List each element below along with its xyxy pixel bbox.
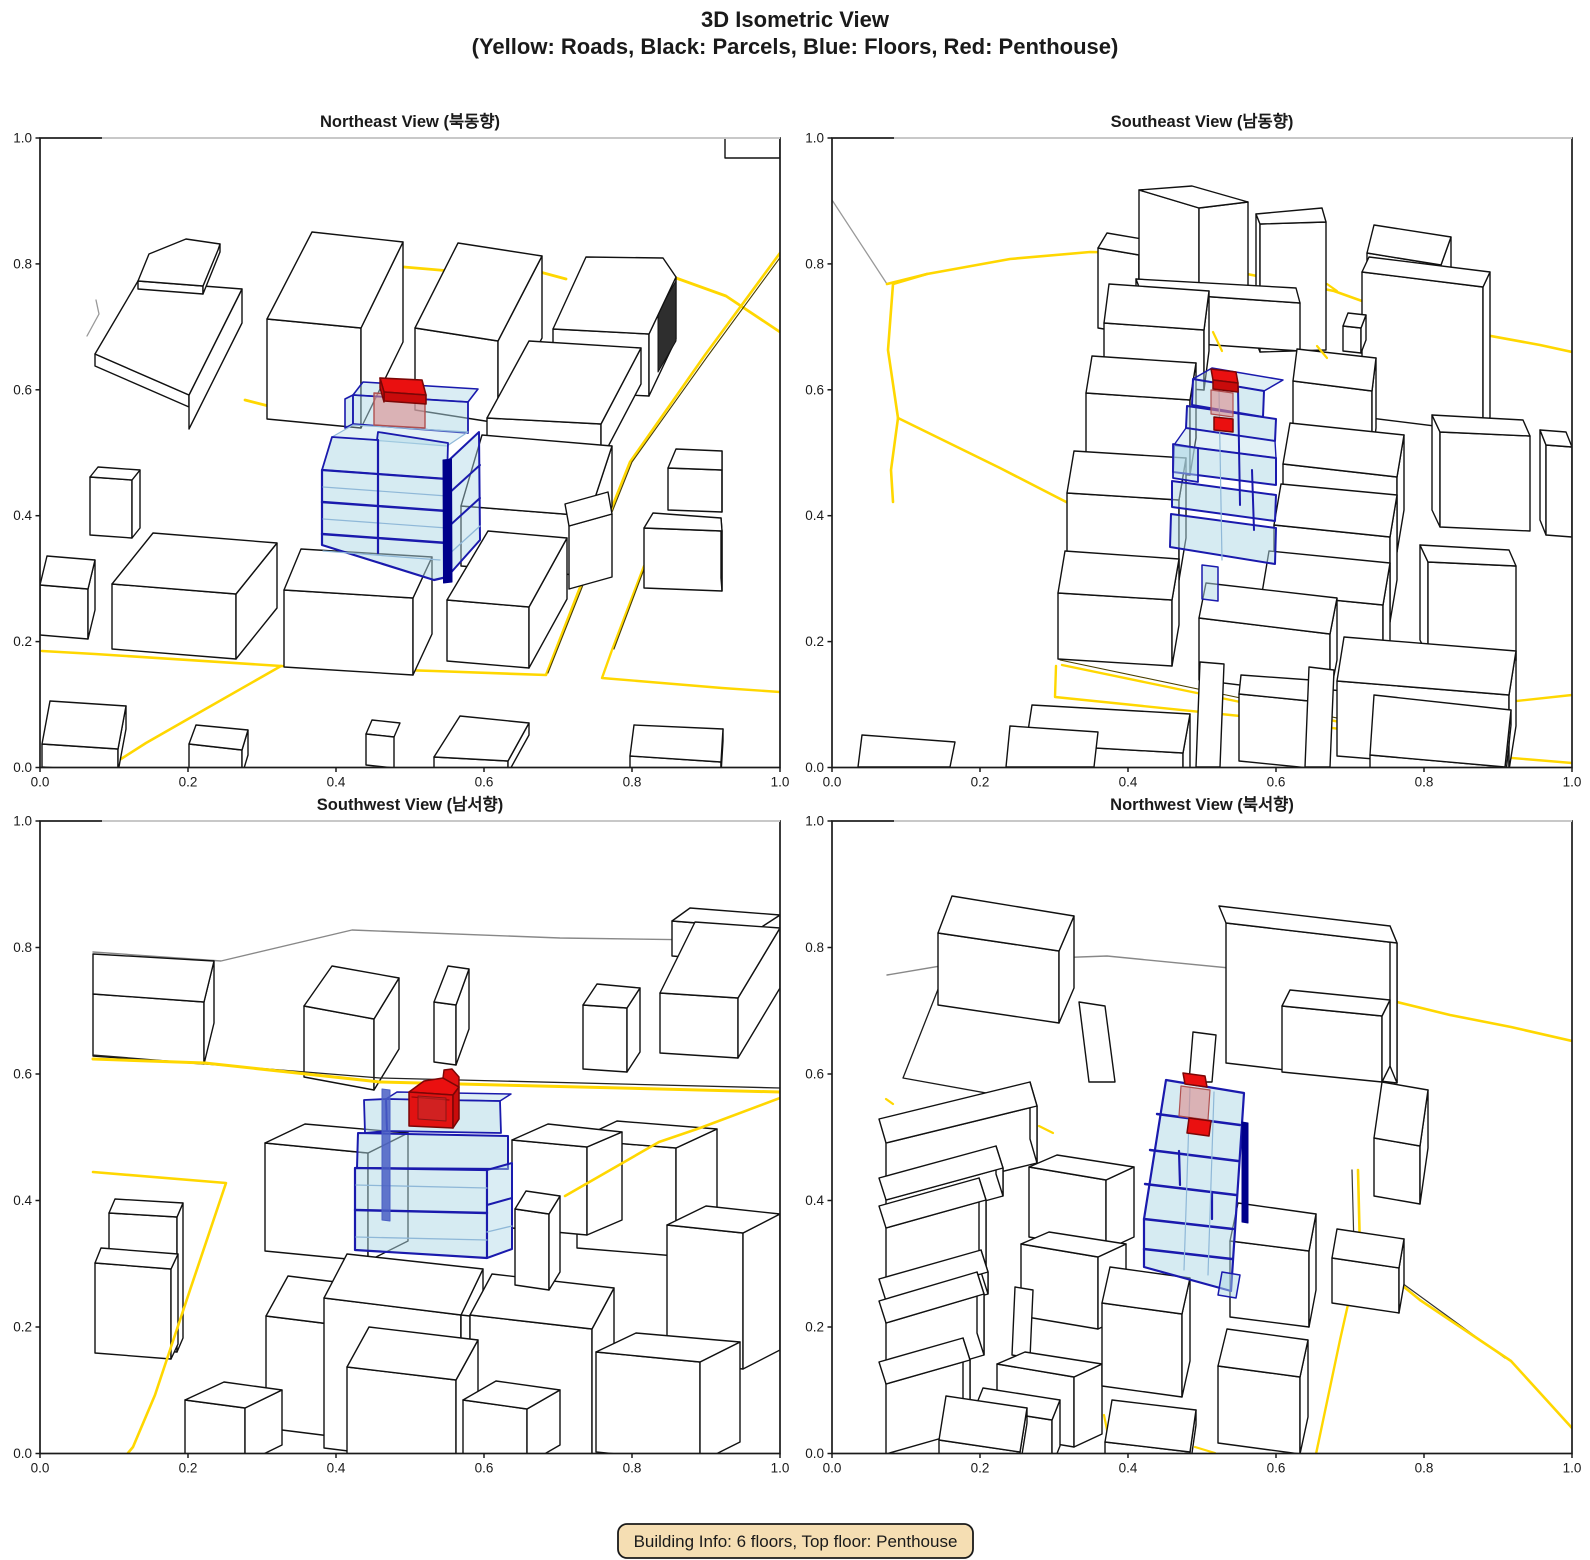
svg-text:0.4: 0.4 (327, 775, 346, 790)
svg-text:0.6: 0.6 (805, 382, 824, 397)
svg-text:Northwest View (북서향): Northwest View (북서향) (1110, 794, 1294, 814)
svg-text:0.2: 0.2 (179, 1461, 198, 1476)
svg-text:1.0: 1.0 (1563, 1461, 1582, 1476)
svg-text:0.8: 0.8 (1415, 775, 1434, 790)
svg-text:0.2: 0.2 (971, 775, 990, 790)
svg-text:(Yellow: Roads, Black: Parcels: (Yellow: Roads, Black: Parcels, Blue: Fl… (472, 34, 1119, 59)
svg-text:0.4: 0.4 (13, 1193, 32, 1208)
svg-text:Southwest View (남서향): Southwest View (남서향) (317, 794, 503, 814)
svg-text:1.0: 1.0 (805, 814, 824, 829)
svg-text:0.6: 0.6 (1267, 1461, 1286, 1476)
svg-text:0.2: 0.2 (805, 634, 824, 649)
svg-text:0.4: 0.4 (805, 508, 824, 523)
svg-text:Southeast View (남동향): Southeast View (남동향) (1111, 111, 1294, 131)
svg-text:0.8: 0.8 (13, 256, 32, 271)
svg-text:Building Info: 6 floors, Top f: Building Info: 6 floors, Top floor: Pent… (634, 1532, 958, 1551)
svg-text:0.8: 0.8 (1415, 1461, 1434, 1476)
svg-text:0.0: 0.0 (13, 1446, 32, 1461)
svg-text:0.8: 0.8 (623, 775, 642, 790)
svg-text:0.4: 0.4 (1119, 775, 1138, 790)
svg-text:1.0: 1.0 (771, 775, 790, 790)
svg-text:0.0: 0.0 (13, 760, 32, 775)
svg-text:0.0: 0.0 (31, 775, 50, 790)
svg-text:1.0: 1.0 (13, 814, 32, 829)
svg-text:0.4: 0.4 (1119, 1461, 1138, 1476)
svg-text:0.8: 0.8 (805, 256, 824, 271)
svg-text:1.0: 1.0 (13, 131, 32, 146)
svg-text:0.4: 0.4 (805, 1193, 824, 1208)
svg-text:0.8: 0.8 (805, 940, 824, 955)
svg-text:Northeast View (북동향): Northeast View (북동향) (320, 111, 500, 131)
svg-text:0.2: 0.2 (13, 634, 32, 649)
svg-text:0.4: 0.4 (327, 1461, 346, 1476)
svg-text:0.8: 0.8 (13, 940, 32, 955)
svg-text:0.6: 0.6 (13, 1067, 32, 1082)
svg-text:0.0: 0.0 (805, 1446, 824, 1461)
svg-text:0.0: 0.0 (823, 1461, 842, 1476)
svg-text:1.0: 1.0 (771, 1461, 790, 1476)
svg-text:0.0: 0.0 (823, 775, 842, 790)
svg-text:1.0: 1.0 (805, 131, 824, 146)
svg-text:0.6: 0.6 (13, 382, 32, 397)
svg-text:0.8: 0.8 (623, 1461, 642, 1476)
svg-text:0.6: 0.6 (1267, 775, 1286, 790)
svg-text:0.0: 0.0 (805, 760, 824, 775)
svg-text:0.2: 0.2 (13, 1320, 32, 1335)
svg-text:0.2: 0.2 (971, 1461, 990, 1476)
svg-text:0.4: 0.4 (13, 508, 32, 523)
svg-text:0.2: 0.2 (805, 1320, 824, 1335)
svg-text:0.6: 0.6 (805, 1067, 824, 1082)
svg-text:0.2: 0.2 (179, 775, 198, 790)
svg-text:0.0: 0.0 (31, 1461, 50, 1476)
svg-text:3D Isometric View: 3D Isometric View (701, 7, 890, 32)
svg-text:1.0: 1.0 (1563, 775, 1582, 790)
svg-text:0.6: 0.6 (475, 775, 494, 790)
svg-text:0.6: 0.6 (475, 1461, 494, 1476)
